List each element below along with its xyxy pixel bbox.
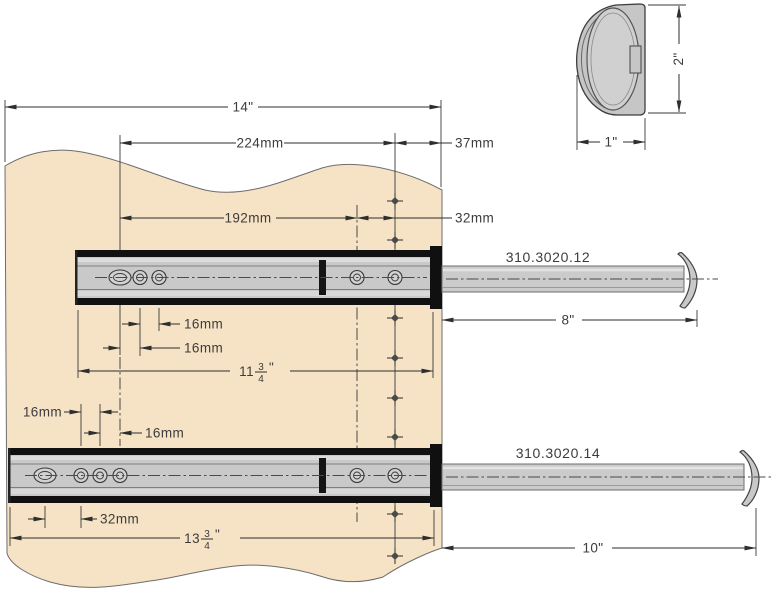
dim-label: 37mm <box>455 136 494 151</box>
dim-front-offset: 37mm <box>395 136 494 151</box>
dim-label: 13 <box>184 531 200 546</box>
dim-knob-height: 2" <box>648 5 686 113</box>
dim-unit: " <box>269 360 274 375</box>
slide-end-cap <box>430 246 442 309</box>
dim-label: 32mm <box>455 211 494 226</box>
part-number-lower: 310.3020.14 <box>516 445 600 461</box>
drawing-canvas: 14" 224mm 37mm 192mm 32mm <box>0 0 773 599</box>
dim-label: 14" <box>232 100 253 115</box>
part-number-upper: 310.3020.12 <box>506 249 590 265</box>
dim-fraction-num: 3 <box>204 529 210 540</box>
dim-label: 1" <box>604 135 617 150</box>
dim-rod2-extension: 10" <box>442 508 756 556</box>
dim-label: 192mm <box>224 211 271 226</box>
dim-fraction-num: 3 <box>258 362 264 373</box>
knob-detail-view: 2" 1" <box>577 4 686 150</box>
lower-slide <box>8 444 442 507</box>
dim-label: 16mm <box>23 405 62 420</box>
dim-fraction-den: 4 <box>204 541 210 552</box>
upper-slide <box>75 246 442 309</box>
technical-drawing: 14" 224mm 37mm 192mm 32mm <box>0 0 773 599</box>
slide-end-cap <box>430 444 442 507</box>
dim-unit: " <box>215 527 220 542</box>
dim-label: 11 <box>239 364 254 379</box>
dim-label: 16mm <box>145 426 184 441</box>
dim-label: 10" <box>582 541 603 556</box>
dim-back-span: 224mm <box>120 136 395 151</box>
dim-label: 2" <box>671 52 686 65</box>
lower-rod <box>442 451 772 506</box>
dim-label: 32mm <box>100 512 139 527</box>
dim-label: 224mm <box>236 136 283 151</box>
dim-rod1-extension: 8" <box>442 310 697 328</box>
knob-clip <box>630 46 641 73</box>
dim-label: 16mm <box>184 317 223 332</box>
dim-label: 8" <box>561 313 574 328</box>
dim-label: 16mm <box>184 341 223 356</box>
dim-fraction-den: 4 <box>258 374 264 385</box>
